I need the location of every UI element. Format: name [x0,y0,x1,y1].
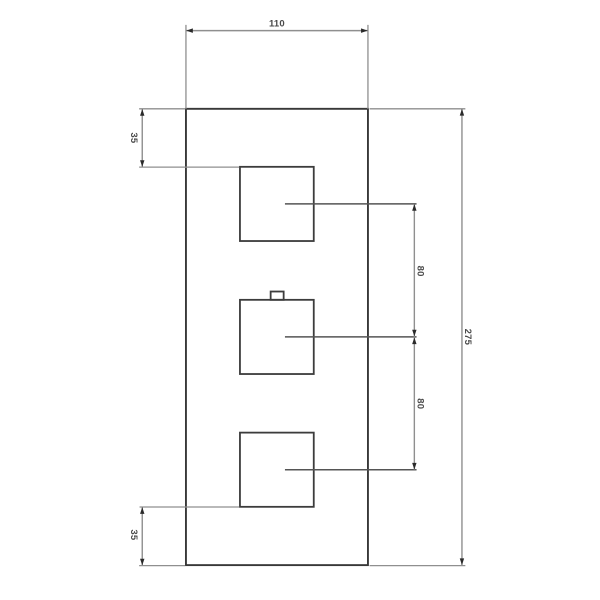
svg-text:110: 110 [269,19,285,30]
svg-text:80: 80 [414,266,425,277]
svg-text:35: 35 [128,132,139,143]
svg-text:80: 80 [414,398,425,409]
svg-text:35: 35 [128,529,139,540]
svg-text:275: 275 [462,329,473,346]
